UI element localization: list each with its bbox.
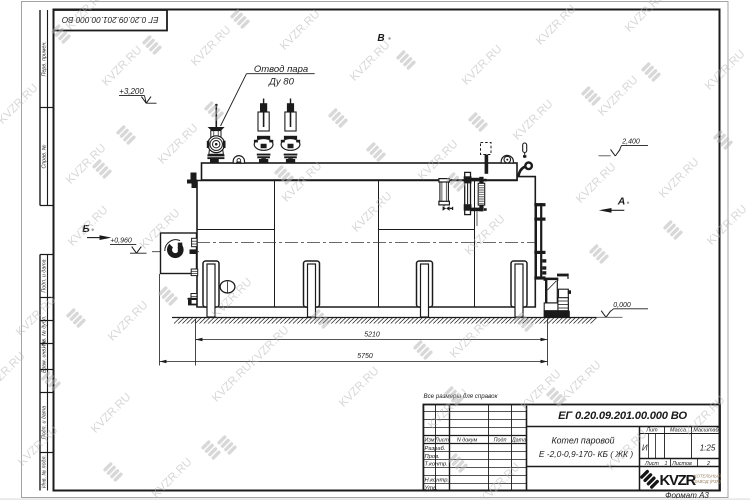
svg-text:+3,200: +3,200 bbox=[119, 87, 144, 96]
svg-text:KVZR.RU: KVZR.RU bbox=[447, 315, 492, 360]
svg-text:KVZR.RU: KVZR.RU bbox=[622, 0, 667, 35]
svg-text:Лит: Лит bbox=[645, 428, 658, 434]
svg-text:Дата: Дата bbox=[511, 438, 526, 444]
svg-text:Н.контр.: Н.контр. bbox=[425, 478, 450, 484]
svg-text:KVZR.RU: KVZR.RU bbox=[209, 359, 254, 404]
svg-text:ЗАВОД (РЗР): ЗАВОД (РЗР) bbox=[694, 479, 721, 484]
svg-text:2: 2 bbox=[706, 461, 710, 467]
svg-text:А: А bbox=[617, 196, 626, 208]
svg-text:KVZR.RU: KVZR.RU bbox=[510, 97, 555, 142]
svg-text:KVZR.RU: KVZR.RU bbox=[277, 7, 322, 52]
svg-text:Пров.: Пров. bbox=[425, 454, 440, 460]
svg-text:ЕГ 0.20.09.201.00.000 ВО: ЕГ 0.20.09.201.00.000 ВО bbox=[558, 410, 687, 422]
svg-text:KVZR.RU: KVZR.RU bbox=[99, 43, 144, 88]
svg-text:Утв.: Утв. bbox=[424, 486, 438, 492]
svg-text:Ду 80: Ду 80 bbox=[268, 76, 294, 87]
svg-text:KVZR.RU: KVZR.RU bbox=[88, 390, 133, 435]
svg-text:KVZR.RU: KVZR.RU bbox=[595, 73, 640, 118]
svg-text:+0,960: +0,960 bbox=[110, 238, 132, 245]
svg-text:KVZR.RU: KVZR.RU bbox=[347, 38, 392, 83]
svg-text:Лист: Лист bbox=[644, 461, 659, 467]
svg-text:И: И bbox=[642, 444, 648, 453]
svg-text:КОТЕЛЬНЫЙ: КОТЕЛЬНЫЙ bbox=[694, 473, 722, 478]
svg-text:N докум: N докум bbox=[457, 438, 478, 444]
svg-text:Отвод пара: Отвод пара bbox=[254, 64, 308, 75]
svg-text:KVZR.RU: KVZR.RU bbox=[336, 364, 381, 409]
svg-text:KVZR.RU: KVZR.RU bbox=[702, 47, 747, 92]
svg-text:Инв. № подл.: Инв. № подл. bbox=[42, 455, 48, 488]
svg-text:KVZR.RU: KVZR.RU bbox=[704, 202, 749, 247]
svg-text:1: 1 bbox=[665, 461, 668, 467]
svg-text:Изм: Изм bbox=[425, 438, 435, 444]
svg-text:KVZR.RU: KVZR.RU bbox=[149, 455, 194, 500]
svg-text:5750: 5750 bbox=[357, 353, 373, 360]
svg-text:Т.контр.: Т.контр. bbox=[425, 462, 448, 468]
svg-text:KVZR.RU: KVZR.RU bbox=[558, 358, 603, 403]
svg-text:KVZR.RU: KVZR.RU bbox=[0, 349, 28, 394]
svg-text:KVZR.RU: KVZR.RU bbox=[13, 293, 58, 338]
svg-text:Лист: Лист bbox=[434, 438, 449, 444]
svg-text:KVZR.RU: KVZR.RU bbox=[518, 367, 563, 412]
svg-text:KVZR.RU: KVZR.RU bbox=[155, 121, 200, 166]
svg-text:KVZR: KVZR bbox=[660, 473, 697, 489]
svg-text:KVZR.RU: KVZR.RU bbox=[188, 23, 233, 68]
svg-text:2,400: 2,400 bbox=[621, 138, 640, 145]
svg-text:Подп. и дата: Подп. и дата bbox=[42, 259, 48, 292]
svg-text:Листов: Листов bbox=[671, 461, 692, 467]
svg-text:KVZR.RU: KVZR.RU bbox=[573, 160, 618, 205]
svg-text:Справ. №: Справ. № bbox=[42, 144, 48, 168]
svg-text:5210: 5210 bbox=[364, 332, 380, 339]
svg-text:Котел паровой: Котел паровой bbox=[551, 435, 614, 445]
svg-text:Перв. примен.: Перв. примен. bbox=[42, 41, 48, 76]
svg-text:Взам. инв. №: Взам. инв. № bbox=[42, 340, 48, 373]
svg-text:Подп: Подп bbox=[494, 438, 507, 444]
svg-text:KVZR.RU: KVZR.RU bbox=[65, 203, 110, 248]
svg-text:KVZR.RU: KVZR.RU bbox=[459, 42, 504, 87]
svg-text:KVZR.RU: KVZR.RU bbox=[105, 298, 150, 343]
svg-text:KVZR.RU: KVZR.RU bbox=[0, 81, 41, 126]
svg-text:KVZR.RU: KVZR.RU bbox=[656, 155, 701, 200]
svg-text:0,000: 0,000 bbox=[613, 302, 631, 309]
svg-text:Разраб.: Разраб. bbox=[425, 446, 446, 452]
svg-text:KVZR.RU: KVZR.RU bbox=[477, 460, 522, 500]
svg-text:1:25: 1:25 bbox=[700, 444, 716, 453]
